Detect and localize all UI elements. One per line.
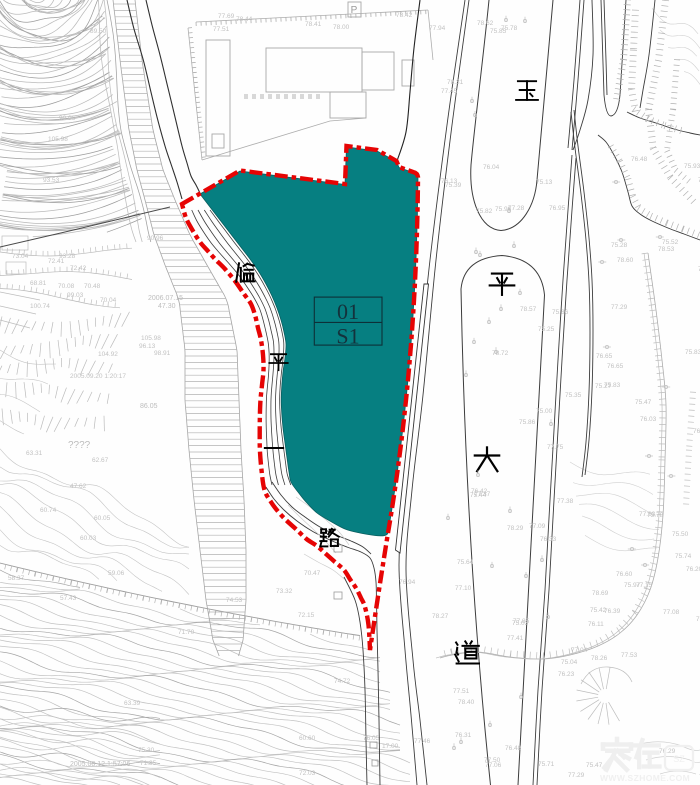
svg-text:76.95: 76.95: [549, 205, 566, 212]
svg-text:76.20: 76.20: [686, 566, 700, 573]
svg-text:78.62: 78.62: [477, 20, 494, 27]
svg-text:78.26: 78.26: [591, 655, 608, 662]
svg-text:76.48: 76.48: [505, 745, 522, 752]
svg-text:76.23: 76.23: [558, 671, 575, 678]
svg-text:104.92: 104.92: [98, 351, 118, 358]
svg-text:60.74: 60.74: [40, 507, 57, 514]
svg-text:75.47: 75.47: [586, 762, 603, 769]
svg-text:75.50: 75.50: [672, 531, 689, 538]
svg-text:77.29: 77.29: [611, 304, 628, 311]
svg-text:90.06: 90.06: [59, 115, 76, 122]
svg-text:90.96: 90.96: [147, 235, 164, 242]
svg-text:70.47: 70.47: [304, 570, 321, 577]
svg-text:75.25: 75.25: [538, 326, 555, 333]
svg-text:78.31: 78.31: [447, 79, 464, 86]
svg-text:75.86: 75.86: [519, 419, 536, 426]
svg-text:78.42: 78.42: [396, 12, 413, 19]
svg-text:77.46: 77.46: [414, 738, 431, 745]
svg-text:77.10: 77.10: [455, 585, 472, 592]
svg-text:78.69: 78.69: [592, 590, 609, 597]
svg-text:105.98: 105.98: [141, 335, 161, 342]
svg-text:89.50: 89.50: [90, 28, 107, 35]
svg-text:62.67: 62.67: [92, 457, 109, 464]
svg-text:77.09: 77.09: [529, 523, 546, 530]
svg-text:76.11: 76.11: [588, 621, 604, 628]
svg-text:75.39: 75.39: [445, 182, 462, 189]
svg-text:P: P: [351, 5, 358, 16]
svg-text:WWW.SZHOME.COM: WWW.SZHOME.COM: [600, 773, 690, 783]
svg-text:77.29: 77.29: [568, 772, 585, 779]
svg-text:????: ????: [68, 440, 91, 451]
svg-text:76.03: 76.03: [640, 416, 657, 423]
svg-text:2005.08.12 1:57:06: 2005.08.12 1:57:06: [70, 761, 130, 768]
svg-text:77.37: 77.37: [474, 491, 491, 498]
svg-text:75.71: 75.71: [538, 761, 555, 768]
svg-text:73.32: 73.32: [276, 588, 293, 595]
svg-text:75.93: 75.93: [684, 163, 700, 170]
svg-text:93.53: 93.53: [43, 177, 60, 184]
svg-text:75.04: 75.04: [561, 659, 578, 666]
svg-text:75.35: 75.35: [565, 392, 582, 399]
svg-text:78.53: 78.53: [658, 246, 675, 253]
svg-text:72.42: 72.42: [70, 265, 87, 272]
svg-text:S1: S1: [336, 324, 359, 349]
svg-text:77.85: 77.85: [513, 618, 530, 625]
svg-text:75.13: 75.13: [536, 179, 553, 186]
svg-text:76.05: 76.05: [363, 735, 380, 742]
svg-text:78.40: 78.40: [458, 699, 475, 706]
svg-text:2006.07.15: 2006.07.15: [148, 295, 183, 302]
svg-text:76.33: 76.33: [540, 536, 557, 543]
svg-text:77.45: 77.45: [441, 88, 458, 95]
svg-text:76.39: 76.39: [604, 608, 621, 615]
svg-text:47.30: 47.30: [158, 303, 176, 310]
svg-text:77.06: 77.06: [485, 762, 502, 769]
svg-text:78.60: 78.60: [617, 257, 634, 264]
svg-text:75.00: 75.00: [536, 408, 553, 415]
svg-text:68.81: 68.81: [30, 280, 47, 287]
svg-text:78.31: 78.31: [696, 616, 700, 623]
svg-text:75.83: 75.83: [604, 382, 621, 389]
svg-text:72.15: 72.15: [298, 612, 315, 619]
svg-text:75.64: 75.64: [457, 559, 474, 566]
svg-text:72.03: 72.03: [299, 770, 316, 777]
svg-text:75.28: 75.28: [611, 242, 628, 249]
svg-text:77.15: 77.15: [636, 582, 653, 589]
svg-text:77.08: 77.08: [663, 609, 680, 616]
svg-text:78.27: 78.27: [432, 613, 449, 620]
svg-text:71.85: 71.85: [140, 760, 157, 767]
svg-text:77.53: 77.53: [621, 652, 638, 659]
svg-text:75.47: 75.47: [635, 399, 652, 406]
svg-text:76.60: 76.60: [616, 571, 633, 578]
svg-text:77.04: 77.04: [571, 647, 588, 654]
svg-text:75.52: 75.52: [662, 239, 679, 246]
svg-text:78.44: 78.44: [236, 16, 253, 23]
svg-text:47.62: 47.62: [70, 483, 87, 490]
svg-text:98.91: 98.91: [154, 350, 171, 357]
svg-text:63.31: 63.31: [26, 450, 43, 457]
svg-text:73.04: 73.04: [12, 253, 29, 260]
svg-text:75.86: 75.86: [552, 309, 569, 316]
svg-text:105.98: 105.98: [48, 136, 68, 143]
svg-text:74.53: 74.53: [226, 597, 243, 604]
svg-text:100.74: 100.74: [30, 303, 50, 310]
svg-text:71.70: 71.70: [178, 629, 195, 636]
svg-text:76.48: 76.48: [631, 156, 648, 163]
svg-text:60.60: 60.60: [299, 735, 316, 742]
svg-text:77.94: 77.94: [429, 25, 446, 32]
svg-text:76.04: 76.04: [483, 164, 500, 171]
svg-text:60.03: 60.03: [80, 535, 97, 542]
svg-text:76.94: 76.94: [399, 579, 416, 586]
svg-text:77.63: 77.63: [639, 511, 656, 518]
svg-text:70.04: 70.04: [100, 297, 117, 304]
svg-text:76.65: 76.65: [596, 353, 613, 360]
svg-text:99.03: 99.03: [67, 292, 84, 299]
svg-text:77.51: 77.51: [453, 688, 470, 695]
svg-text:01: 01: [337, 299, 359, 324]
svg-text:70.48: 70.48: [84, 283, 101, 290]
svg-text:93.28: 93.28: [59, 253, 76, 260]
svg-text:78.41: 78.41: [305, 21, 322, 28]
svg-text:78.57: 78.57: [520, 306, 537, 313]
svg-text:76.31: 76.31: [455, 732, 472, 739]
svg-text:77.38: 77.38: [557, 498, 574, 505]
svg-text:75.82: 75.82: [476, 208, 493, 215]
svg-text:59.06: 59.06: [108, 570, 125, 577]
svg-text:74.72: 74.72: [334, 678, 351, 685]
svg-text:76.84: 76.84: [693, 428, 700, 435]
svg-text:75.83: 75.83: [685, 349, 700, 356]
svg-text:96.13: 96.13: [139, 343, 156, 350]
svg-text:77.69: 77.69: [218, 13, 235, 20]
svg-text:78.29: 78.29: [507, 525, 524, 532]
svg-text:78.00: 78.00: [333, 24, 350, 31]
svg-text:76.65: 76.65: [607, 363, 624, 370]
svg-text:63.39: 63.39: [124, 700, 141, 707]
svg-text:60.05: 60.05: [94, 515, 111, 522]
svg-text:75.74: 75.74: [675, 553, 692, 560]
svg-text:77.51: 77.51: [213, 26, 230, 33]
svg-text:17.00: 17.00: [382, 743, 399, 750]
svg-text:77.41: 77.41: [507, 635, 524, 642]
svg-text:86.05: 86.05: [140, 403, 158, 410]
svg-text:2005.09.20 1:20:17: 2005.09.20 1:20:17: [70, 373, 126, 380]
svg-text:75.78: 75.78: [501, 25, 518, 32]
svg-text:57.43: 57.43: [60, 595, 77, 602]
svg-text:SZ: SZ: [673, 754, 685, 764]
svg-text:75.30: 75.30: [138, 747, 155, 754]
svg-text:77.75: 77.75: [547, 444, 564, 451]
svg-text:70.08: 70.08: [58, 283, 75, 290]
